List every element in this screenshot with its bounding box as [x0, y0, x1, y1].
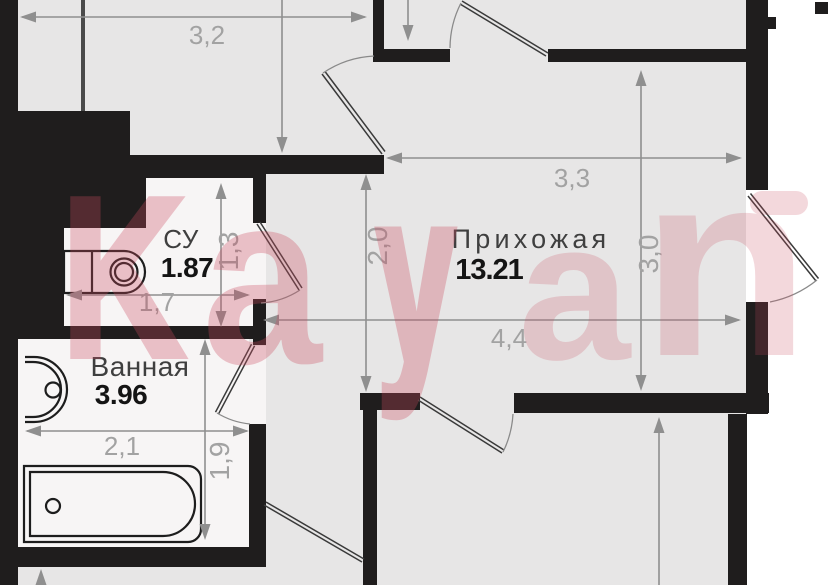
svg-text:a: a	[518, 181, 632, 402]
svg-text:n: n	[641, 117, 810, 412]
svg-text:3,2: 3,2	[189, 20, 225, 50]
svg-text:2,1: 2,1	[104, 431, 140, 461]
svg-text:1,9: 1,9	[204, 442, 235, 481]
svg-text:a: a	[202, 141, 323, 415]
svg-text:13.21: 13.21	[455, 254, 523, 286]
svg-text:y: y	[378, 141, 454, 416]
svg-text:K: K	[62, 152, 184, 403]
